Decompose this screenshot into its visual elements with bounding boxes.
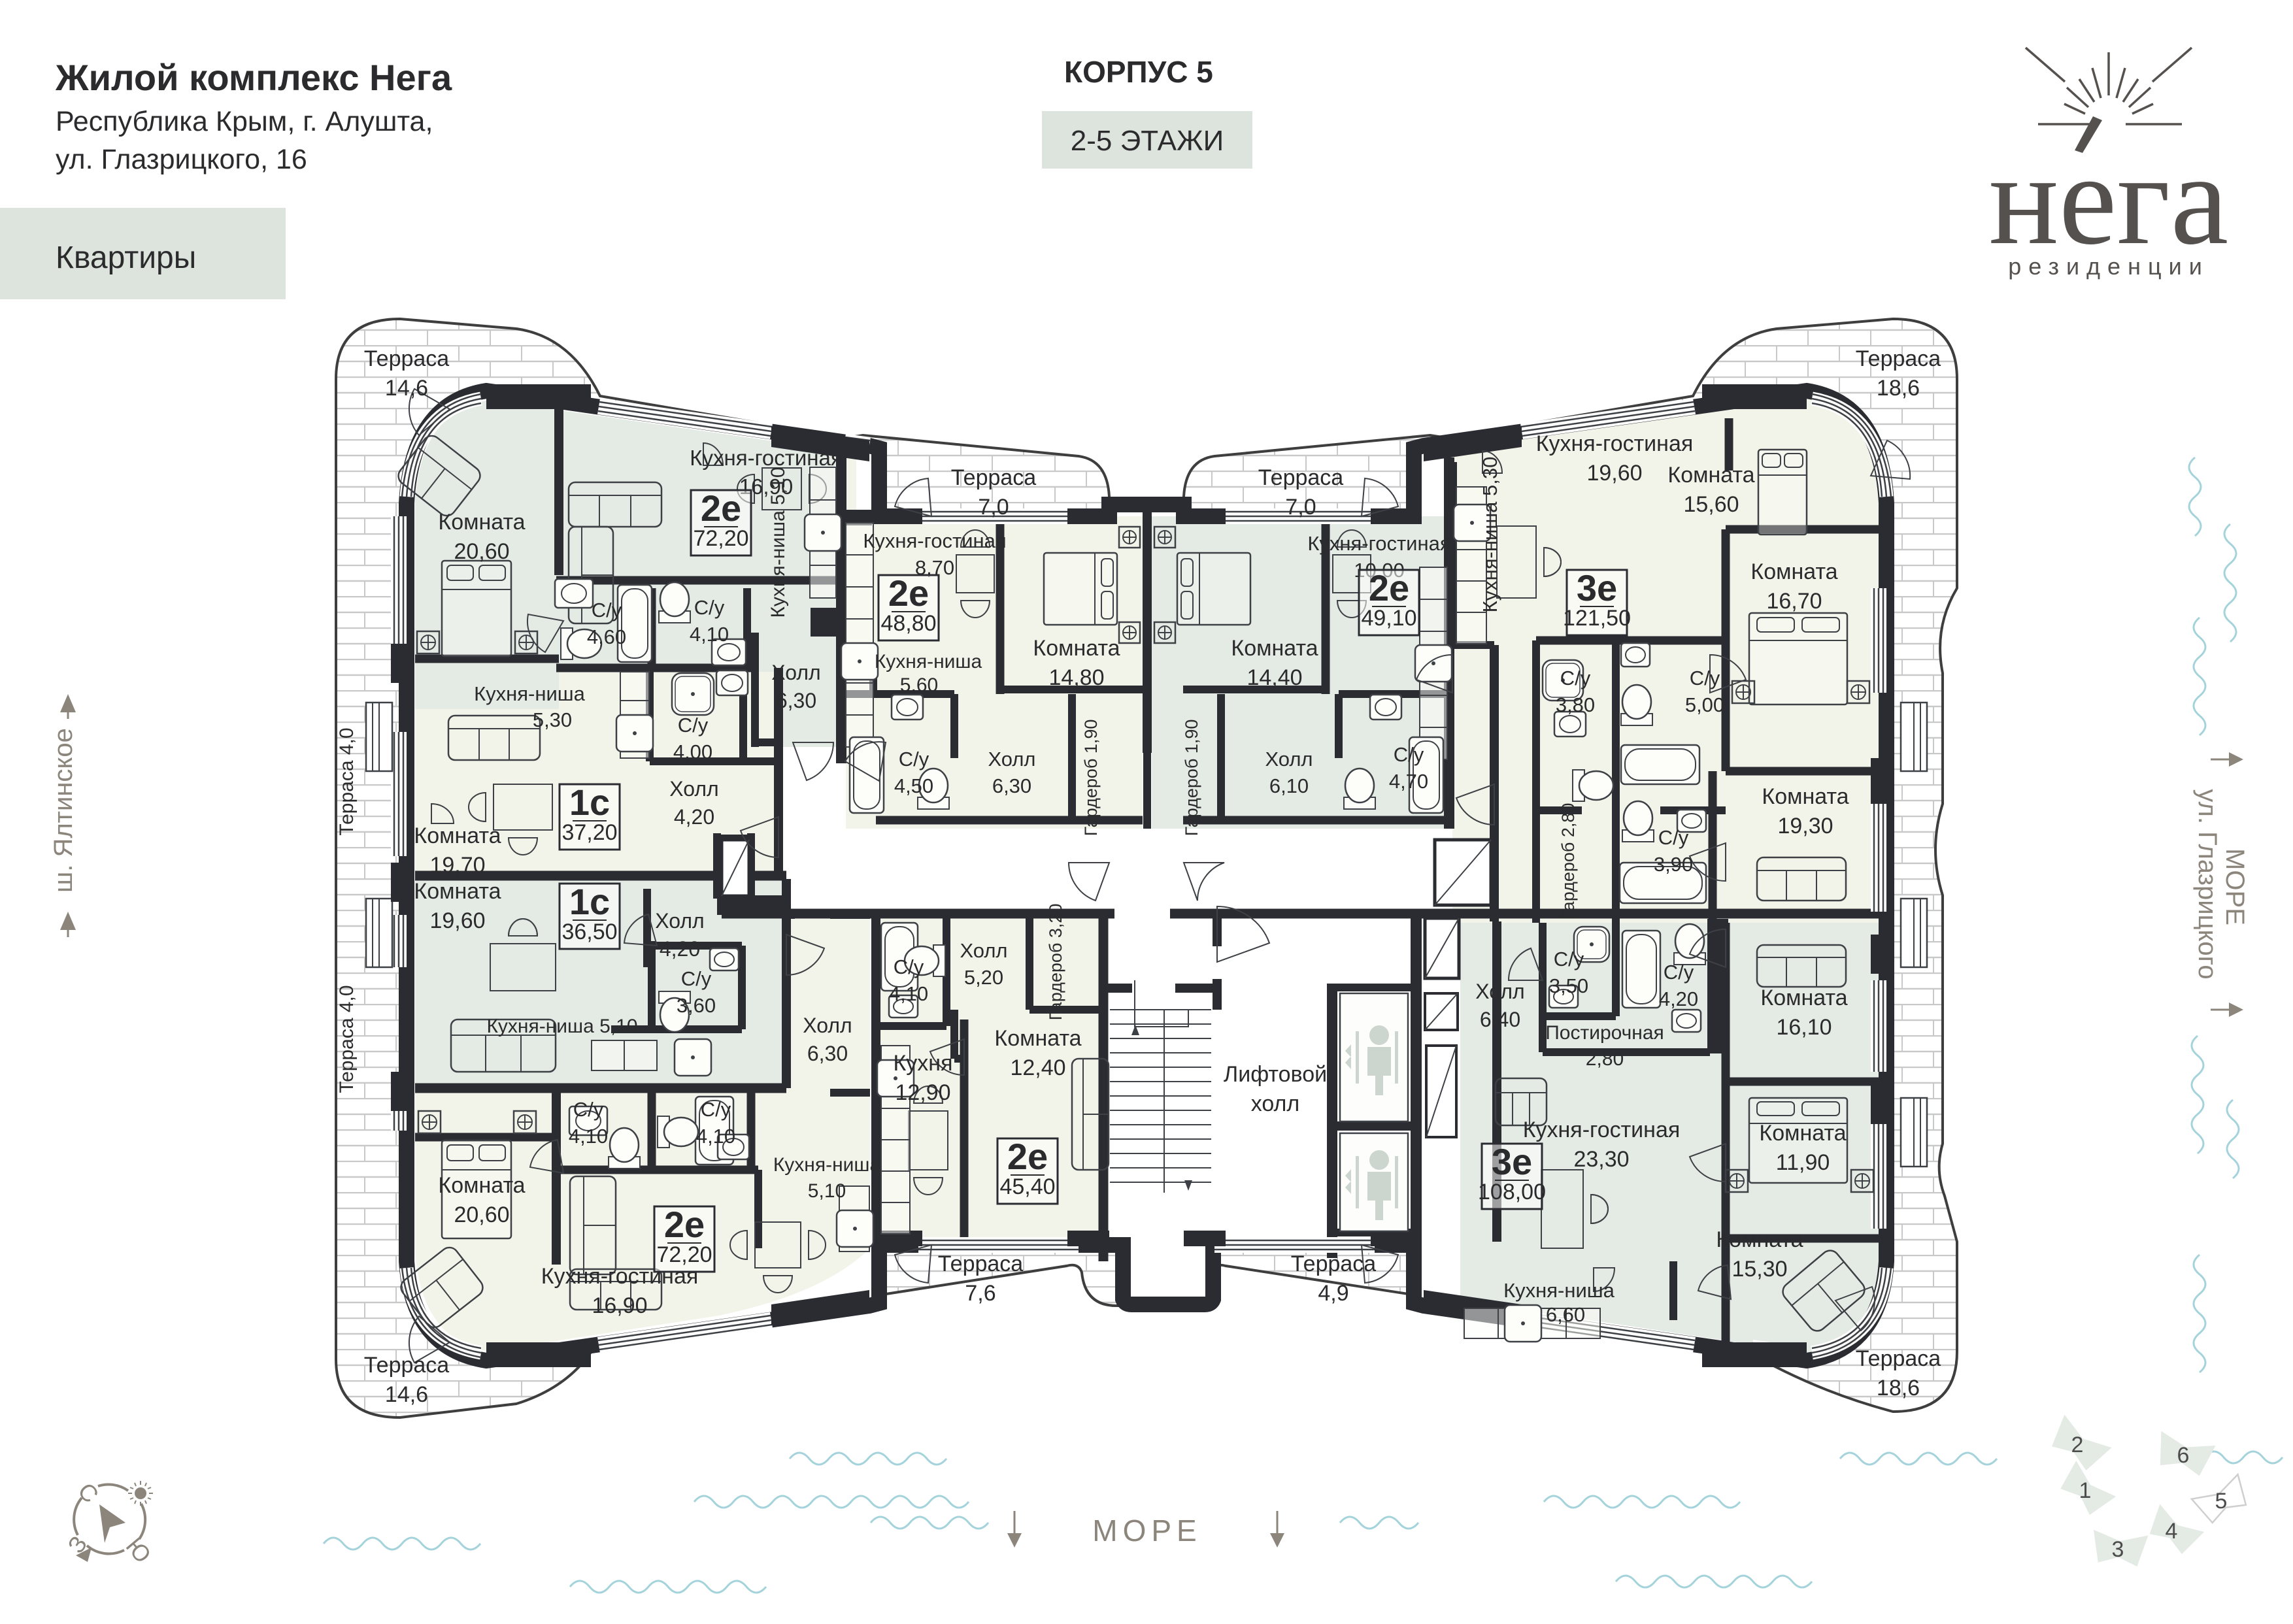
svg-text:2е: 2е bbox=[1007, 1136, 1048, 1177]
svg-text:МОРЕ: МОРЕ bbox=[1092, 1514, 1201, 1548]
svg-text:Кухня-ниша: Кухня-ниша bbox=[1503, 1279, 1615, 1302]
svg-text:Кухня-ниша: Кухня-ниша bbox=[474, 682, 586, 705]
svg-text:нега: нега bbox=[1989, 127, 2229, 272]
svg-text:3е: 3е bbox=[1577, 567, 1617, 608]
svg-text:резиденции: резиденции bbox=[2008, 253, 2209, 280]
svg-text:ул. Глазрицкого: ул. Глазрицкого bbox=[2193, 789, 2222, 979]
svg-text:2е: 2е bbox=[701, 488, 741, 529]
svg-text:Квартиры: Квартиры bbox=[56, 240, 196, 275]
svg-text:36,50: 36,50 bbox=[561, 920, 617, 944]
svg-text:72,20: 72,20 bbox=[656, 1242, 712, 1267]
svg-text:72,20: 72,20 bbox=[693, 526, 748, 551]
svg-text:4: 4 bbox=[2166, 1519, 2178, 1544]
svg-text:Республика Крым, г. Алушта,: Республика Крым, г. Алушта, bbox=[56, 106, 433, 137]
svg-text:2е: 2е bbox=[664, 1204, 705, 1245]
svg-text:ул. Глазрицкого, 16: ул. Глазрицкого, 16 bbox=[56, 144, 307, 175]
svg-text:1с: 1с bbox=[569, 881, 610, 922]
svg-text:ш. Ялтинское: ш. Ялтинское bbox=[49, 728, 78, 893]
svg-text:1с: 1с bbox=[569, 782, 610, 823]
svg-text:45,40: 45,40 bbox=[999, 1174, 1055, 1199]
svg-text:Кухня-ниша 5,30: Кухня-ниша 5,30 bbox=[1479, 457, 1501, 613]
svg-text:48,80: 48,80 bbox=[880, 611, 936, 636]
svg-text:2-5 ЭТАЖИ: 2-5 ЭТАЖИ bbox=[1071, 125, 1224, 157]
svg-text:2е: 2е bbox=[1369, 567, 1409, 608]
svg-text:МОРЕ: МОРЕ bbox=[2220, 848, 2249, 925]
svg-text:Жилой комплекс Нега: Жилой комплекс Нега bbox=[55, 57, 452, 98]
svg-text:6: 6 bbox=[2177, 1443, 2190, 1468]
svg-text:3е: 3е bbox=[1492, 1141, 1532, 1182]
svg-text:Гардероб 1,90: Гардероб 1,90 bbox=[1182, 720, 1201, 837]
svg-text:49,10: 49,10 bbox=[1361, 606, 1416, 631]
svg-text:Кухня-ниша 5,10: Кухня-ниша 5,10 bbox=[486, 1016, 637, 1037]
svg-text:121,50: 121,50 bbox=[1563, 606, 1631, 631]
svg-text:КОРПУС 5: КОРПУС 5 bbox=[1064, 55, 1213, 89]
svg-text:2: 2 bbox=[2071, 1433, 2084, 1457]
svg-text:1: 1 bbox=[2079, 1478, 2092, 1503]
svg-text:37,20: 37,20 bbox=[561, 820, 617, 845]
svg-text:6,60: 6,60 bbox=[1546, 1303, 1585, 1326]
svg-text:5: 5 bbox=[2215, 1489, 2228, 1514]
svg-text:2е: 2е bbox=[888, 572, 929, 614]
svg-text:3: 3 bbox=[2112, 1537, 2124, 1562]
svg-text:Кухня-ниша 5,10: Кухня-ниша 5,10 bbox=[767, 467, 789, 618]
svg-text:Гардероб 1,90: Гардероб 1,90 bbox=[1081, 720, 1101, 837]
svg-text:Гардероб 2,80: Гардероб 2,80 bbox=[1558, 803, 1578, 920]
svg-text:Гардероб 3,20: Гардероб 3,20 bbox=[1046, 904, 1065, 1021]
svg-text:5,30: 5,30 bbox=[533, 708, 572, 731]
svg-text:Кухня-ниша: Кухня-ниша bbox=[875, 651, 982, 672]
svg-text:108,00: 108,00 bbox=[1478, 1180, 1546, 1204]
svg-text:5,60: 5,60 bbox=[900, 674, 938, 696]
svg-text:Терраса 4,0: Терраса 4,0 bbox=[336, 985, 358, 1093]
svg-text:Терраса 4,0: Терраса 4,0 bbox=[336, 727, 358, 835]
